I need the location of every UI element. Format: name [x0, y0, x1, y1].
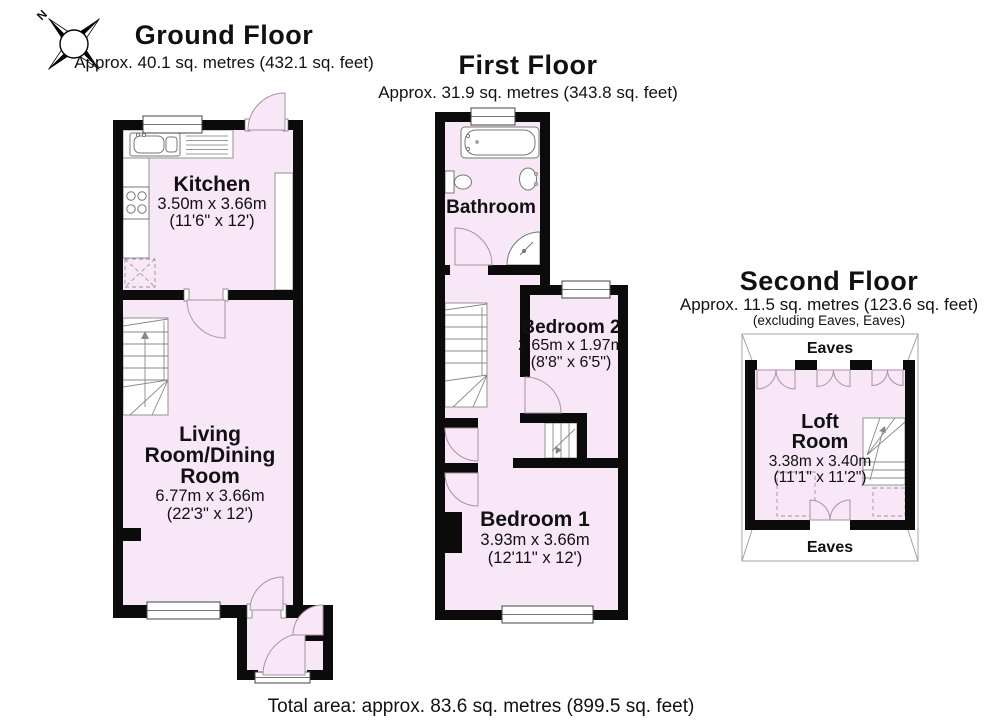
loft-room-label-2: Room [792, 431, 849, 453]
bedroom2-label: Bedroom 2 [521, 317, 620, 338]
ground-stairs-icon [123, 318, 168, 415]
bedroom1-dims-metric: 3.93m x 3.66m [480, 531, 589, 549]
compass-north-label: N [34, 7, 50, 23]
bath-icon [461, 127, 539, 158]
total-area-text: Total area: approx. 83.6 sq. metres (899… [0, 696, 962, 718]
second-floor-area-note: (excluding Eaves, Eaves) [679, 313, 979, 328]
living-room-dims-metric: 6.77m x 3.66m [155, 487, 264, 505]
floorplan-page: N Ground Floor Approx. 40.1 sq. metres (… [0, 0, 1000, 727]
loft-room-dims-metric: 3.38m x 3.40m [769, 453, 872, 470]
first-stairs-up-icon [545, 423, 577, 458]
ground-floor-area: Approx. 40.1 sq. metres (432.1 sq. feet) [74, 53, 374, 73]
ground-floor-plan: Kitchen 3.50m x 3.66m (11'6" x 12') Livi… [100, 85, 340, 687]
eaves-top-label: Eaves [807, 340, 853, 357]
second-floor-title: Second Floor [729, 266, 929, 297]
living-room-label-2: Room/Dining [145, 444, 276, 467]
ground-floor-title: Ground Floor [124, 20, 324, 51]
eaves-bottom-label: Eaves [807, 539, 853, 556]
loft-room-label-1: Loft [801, 411, 839, 433]
bedroom1-label: Bedroom 1 [480, 508, 590, 531]
living-room-label-3: Room [180, 465, 240, 488]
living-room-label-1: Living [179, 423, 241, 446]
bedroom1-dims-imperial: (12'11" x 12') [488, 549, 582, 567]
living-room-dims-imperial: (22'3" x 12') [167, 505, 253, 523]
kitchen-dims-imperial: (11'6" x 12') [169, 212, 254, 230]
second-floor-plan: Eaves Loft Room 3.38m x 3.40m (11'1" x 1… [735, 330, 925, 575]
loft-room-dims-imperial: (11'1" x 11'2") [773, 469, 866, 486]
kitchen-label: Kitchen [173, 173, 250, 196]
bedroom2-dims-imperial: (8'8" x 6'5") [531, 354, 612, 371]
kitchen-dims-metric: 3.50m x 3.66m [157, 195, 266, 213]
hob-icon [123, 187, 149, 219]
first-floor-title: First Floor [428, 50, 628, 81]
first-stairs-down-icon [445, 303, 487, 407]
bedroom2-dims-metric: 2.65m x 1.97m [518, 337, 624, 354]
bathroom-label: Bathroom [446, 197, 536, 218]
second-floor-area: Approx. 11.5 sq. metres (123.6 sq. feet) [679, 295, 979, 315]
first-floor-plan: Bathroom Bedroom 2 2.65m x 1.97m (8'8" x… [425, 85, 640, 635]
loft-stairs-icon [863, 418, 905, 485]
compass-rose: N [26, 2, 118, 86]
